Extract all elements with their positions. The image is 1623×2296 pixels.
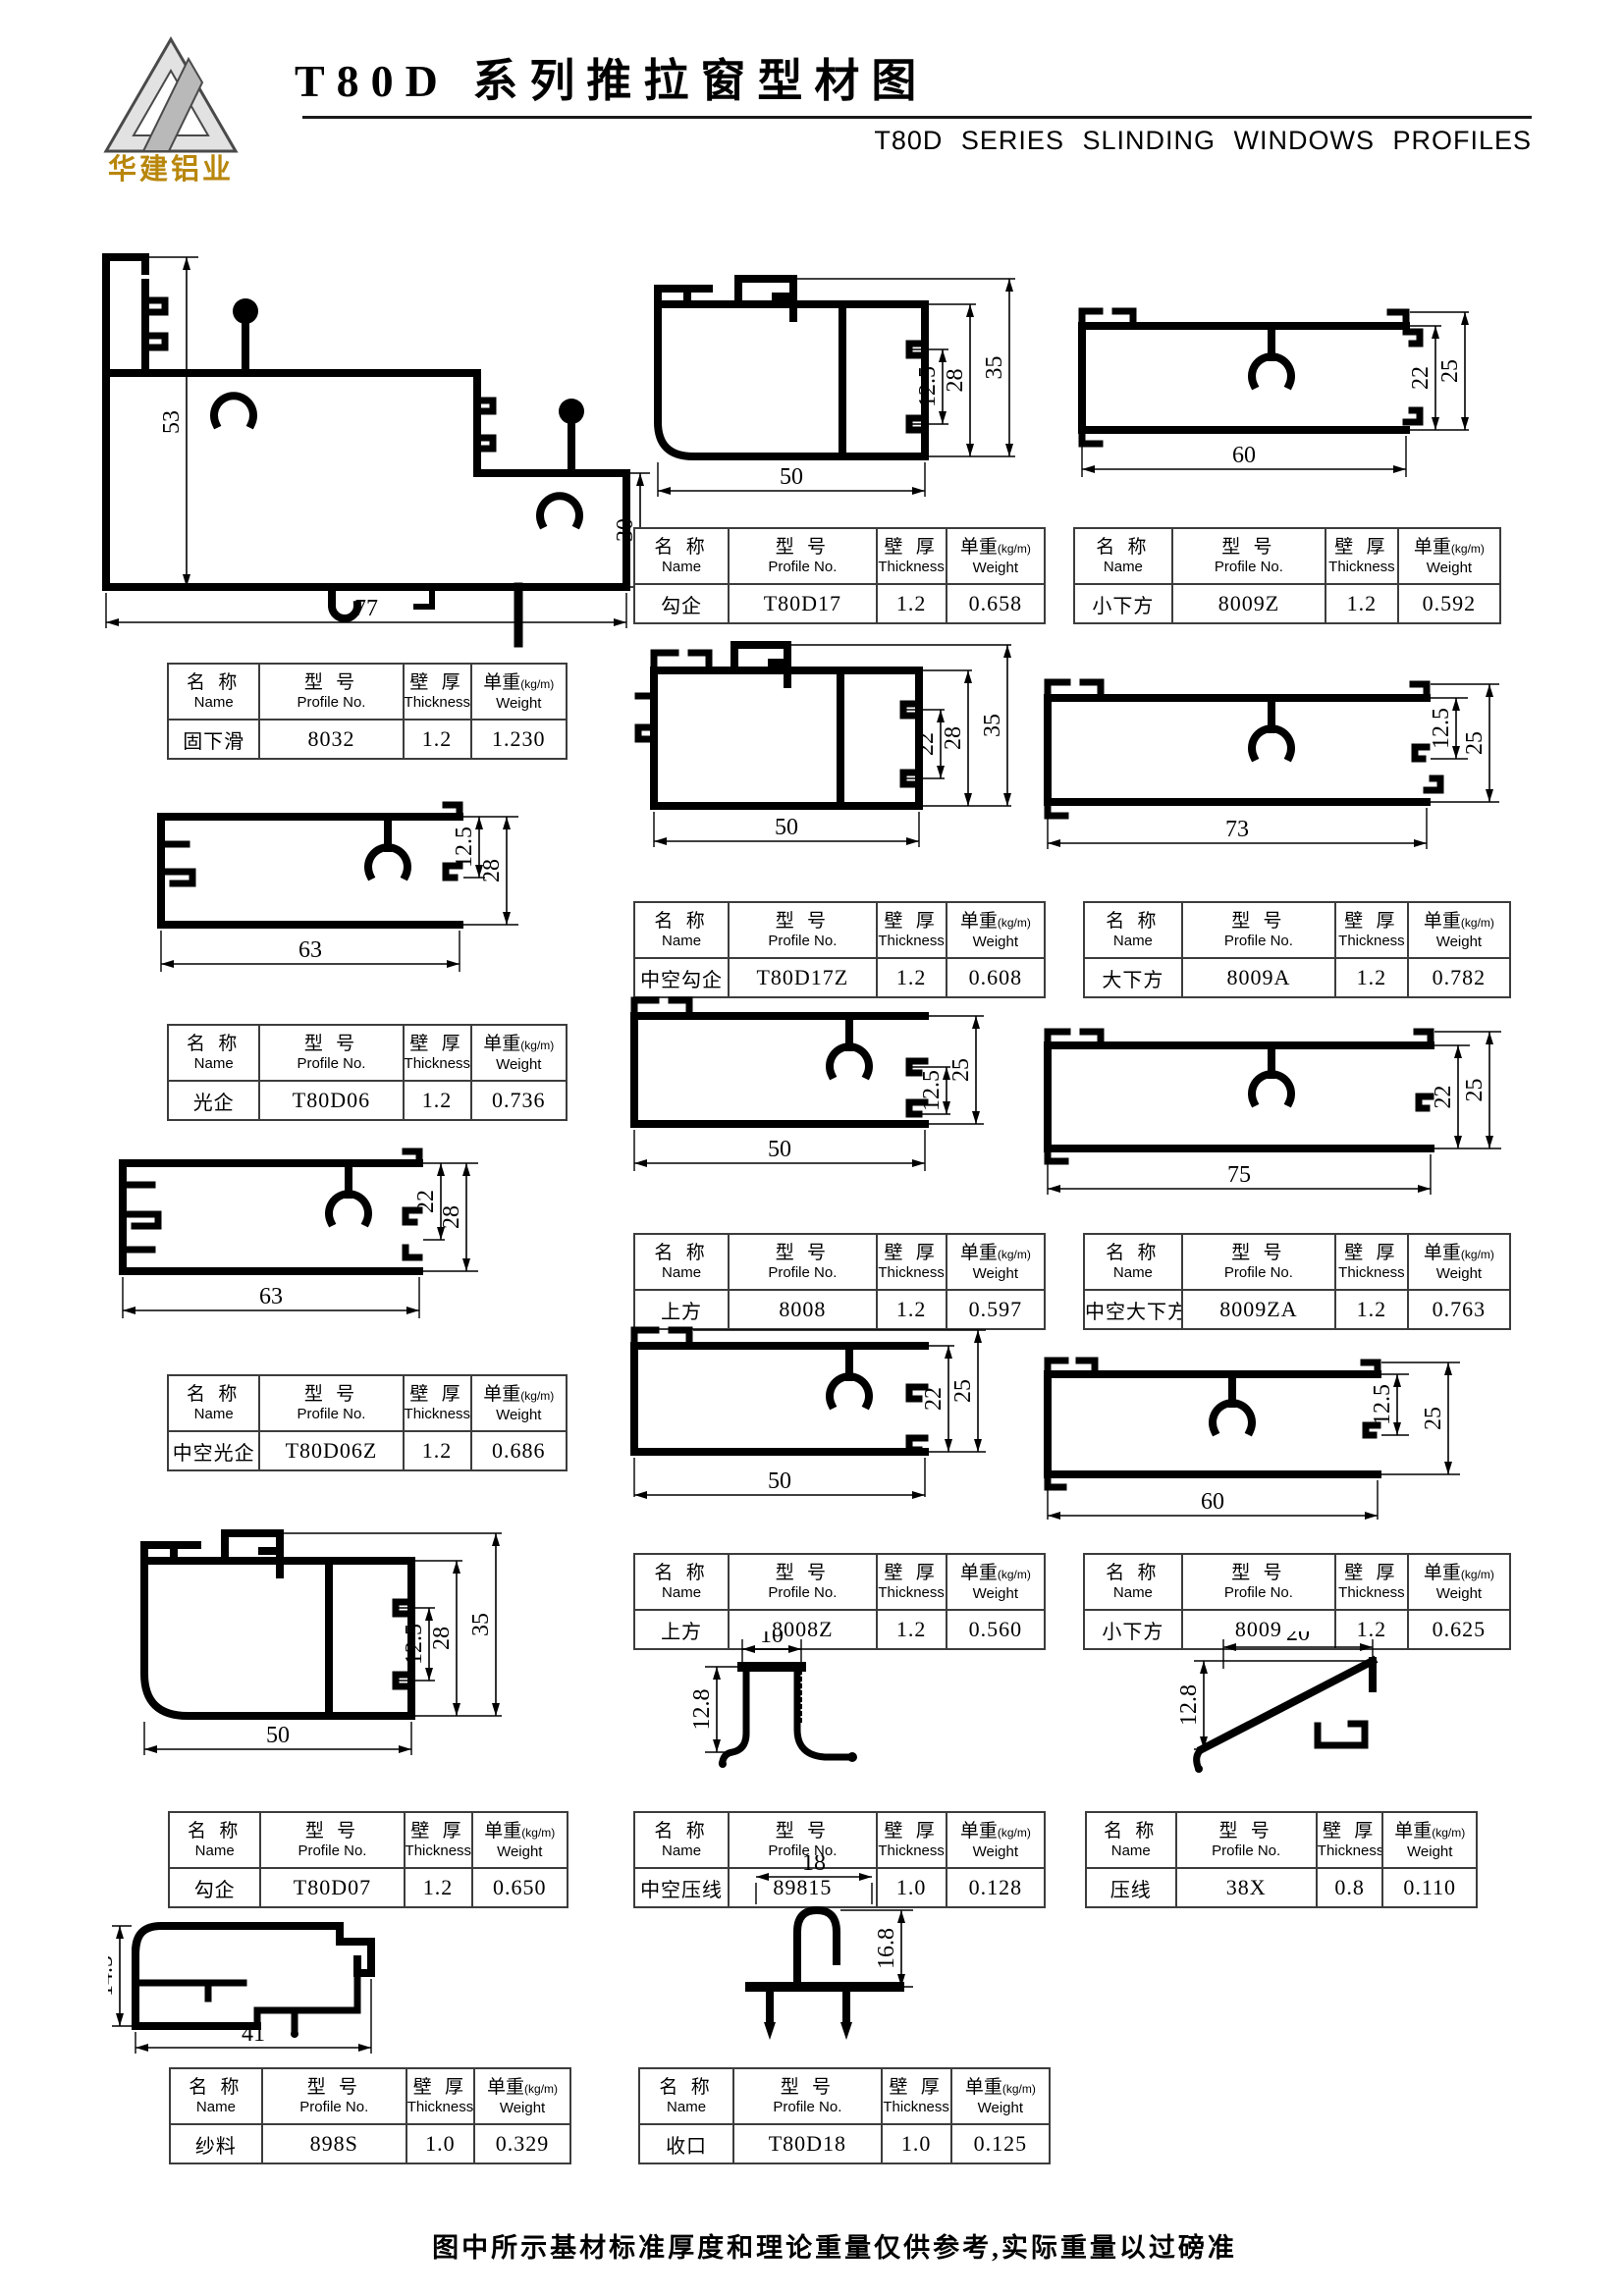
col-name-cn: 名 称	[635, 1243, 728, 1264]
col-model-cn: 型 号	[263, 2077, 406, 2099]
profile-model: 8009A	[1182, 958, 1335, 997]
profile-data-row: 小下方 8009Z 1.2 0.592	[1074, 584, 1500, 623]
col-weight-cn: 单重(kg/m)	[947, 911, 1044, 934]
col-thickness-cn: 壁 厚	[1336, 911, 1407, 933]
col-thickness-en: Thickness	[1336, 1584, 1407, 1601]
profile-name: 小下方	[1074, 584, 1172, 623]
col-model-en: Profile No.	[1183, 933, 1334, 949]
profile-group-89815: 1012.8	[677, 1631, 889, 1789]
col-weight-en: Weight	[947, 1843, 1044, 1860]
col-weight-cn: 单重(kg/m)	[472, 1034, 566, 1056]
col-model-en: Profile No.	[730, 559, 875, 575]
table-header-row: 名 称Name 型 号Profile No. 壁 厚Thickness 单重(k…	[1084, 902, 1510, 958]
dimension-label: 73	[1225, 817, 1249, 842]
col-model-cn: 型 号	[730, 1821, 875, 1842]
table-header-row: 名 称Name 型 号Profile No. 壁 厚Thickness 单重(k…	[1086, 1812, 1477, 1868]
profile-name: 中空大下方	[1084, 1290, 1182, 1329]
table-header-row: 名 称Name 型 号Profile No. 壁 厚Thickness 单重(k…	[1084, 1234, 1510, 1290]
col-name-cn: 名 称	[635, 1563, 728, 1584]
col-name-en: Name	[169, 694, 258, 711]
profile-weight: 0.625	[1408, 1610, 1510, 1649]
profile-name: 收口	[639, 2124, 733, 2163]
profile-drawing-8009A: 12.52573	[1036, 653, 1537, 898]
col-weight-en: Weight	[947, 1585, 1044, 1602]
dimension-label: 16.8	[874, 1928, 899, 1969]
dimension-label: 50	[780, 464, 803, 490]
table-header-row: 名 称Name 型 号Profile No. 壁 厚Thickness 单重(k…	[168, 664, 567, 720]
col-model-cn: 型 号	[730, 1243, 875, 1264]
col-name-cn: 名 称	[635, 1821, 728, 1842]
profile-group-8009ZA: 222575	[1036, 1006, 1537, 1230]
profile-data-row: 压线 38X 0.8 0.110	[1086, 1868, 1477, 1907]
profile-group-8008: 12.52550	[619, 967, 1041, 1230]
col-thickness-cn: 壁 厚	[407, 2077, 473, 2099]
dimension-label: 63	[259, 1284, 283, 1309]
col-weight-cn: 单重(kg/m)	[952, 2077, 1049, 2100]
col-name-en: Name	[635, 1584, 728, 1601]
profile-weight: 0.329	[474, 2124, 570, 2163]
col-thickness-cn: 壁 厚	[405, 1384, 470, 1406]
profile-group-38X: 2012.8	[1168, 1631, 1409, 1789]
col-weight-en: Weight	[952, 2100, 1049, 2116]
profile-drawing-T80D06: 12.52863	[147, 775, 569, 1021]
col-name-cn: 名 称	[635, 911, 728, 933]
profile-table-wrap-T80D17: 名 称Name 型 号Profile No. 壁 厚Thickness 单重(k…	[633, 527, 1046, 624]
col-thickness-cn: 壁 厚	[406, 1821, 471, 1842]
col-model-en: Profile No.	[730, 1264, 875, 1281]
profile-model: 8009ZA	[1182, 1290, 1335, 1329]
profile-weight: 1.230	[471, 720, 567, 759]
col-thickness-en: Thickness	[405, 1055, 470, 1072]
profile-weight: 0.560	[947, 1610, 1045, 1649]
col-weight-en: Weight	[1409, 1265, 1509, 1282]
table-header-row: 名 称Name 型 号Profile No. 壁 厚Thickness 单重(k…	[634, 902, 1045, 958]
profile-name: 小下方	[1084, 1610, 1182, 1649]
dimension-label: 12.5	[402, 1624, 427, 1665]
profile-weight: 0.736	[471, 1081, 567, 1120]
profile-data-row: 大下方 8009A 1.2 0.782	[1084, 958, 1510, 997]
profile-thickness: 1.2	[404, 720, 471, 759]
company-logo: 华建铝业	[86, 31, 255, 188]
dimension-label: 53	[159, 410, 185, 434]
col-weight-en: Weight	[472, 1056, 566, 1073]
table-header-row: 名 称Name 型 号Profile No. 壁 厚Thickness 单重(k…	[639, 2068, 1050, 2124]
profile-table-898S: 名 称Name 型 号Profile No. 壁 厚Thickness 单重(k…	[169, 2067, 571, 2164]
dimension-label: 28	[943, 369, 968, 393]
col-name-cn: 名 称	[1085, 911, 1181, 933]
profile-drawing-T80D17: 12.5283550	[619, 245, 1041, 525]
dimension-label: 25	[1437, 359, 1463, 383]
col-model-cn: 型 号	[734, 2077, 880, 2099]
profile-thickness: 1.2	[1335, 958, 1408, 997]
profile-drawing-8032: 533077	[88, 167, 658, 658]
col-thickness-en: Thickness	[878, 933, 946, 949]
profile-weight: 0.128	[947, 1868, 1045, 1907]
profile-table-38X: 名 称Name 型 号Profile No. 壁 厚Thickness 单重(k…	[1085, 1811, 1478, 1908]
profile-data-row: 光企 T80D06 1.2 0.736	[168, 1081, 567, 1120]
col-weight-cn: 单重(kg/m)	[1409, 1243, 1509, 1265]
col-thickness-en: Thickness	[883, 2099, 950, 2115]
profile-table-8009ZA: 名 称Name 型 号Profile No. 壁 厚Thickness 单重(k…	[1083, 1233, 1511, 1330]
profile-drawing-T80D18: 1816.8	[727, 1855, 938, 2052]
profile-drawing-T80D07: 12.5283550	[103, 1492, 550, 1777]
dimension-label: 60	[1201, 1489, 1224, 1515]
table-header-row: 名 称Name 型 号Profile No. 壁 厚Thickness 单重(k…	[169, 1812, 568, 1868]
col-model-en: Profile No.	[261, 1842, 403, 1859]
table-header-row: 名 称Name 型 号Profile No. 壁 厚Thickness 单重(k…	[634, 528, 1045, 584]
col-weight-en: Weight	[947, 560, 1044, 576]
profile-group-8009A: 12.52573	[1036, 653, 1537, 898]
col-weight-cn: 单重(kg/m)	[473, 1821, 567, 1843]
profile-table-wrap-38X: 名 称Name 型 号Profile No. 壁 厚Thickness 单重(k…	[1085, 1811, 1478, 1908]
col-weight-cn: 单重(kg/m)	[1399, 537, 1499, 560]
col-thickness-en: Thickness	[406, 1842, 471, 1859]
col-model-en: Profile No.	[263, 2099, 406, 2115]
profile-table-wrap-8032: 名 称Name 型 号Profile No. 壁 厚Thickness 单重(k…	[167, 663, 568, 760]
dimension-label: 35	[468, 1613, 494, 1636]
col-name-en: Name	[635, 1264, 728, 1281]
profile-thickness: 1.0	[406, 2124, 474, 2163]
col-name-en: Name	[635, 933, 728, 949]
col-thickness-en: Thickness	[405, 694, 470, 711]
profile-drawing-8009Z: 222560	[1070, 275, 1522, 525]
dimension-label: 63	[298, 937, 322, 963]
profile-table-wrap-T80D06Z: 名 称Name 型 号Profile No. 壁 厚Thickness 单重(k…	[167, 1374, 568, 1471]
col-thickness-en: Thickness	[1336, 933, 1407, 949]
col-model-cn: 型 号	[730, 911, 875, 933]
dimension-label: 25	[1421, 1407, 1446, 1430]
profile-table-wrap-8009A: 名 称Name 型 号Profile No. 壁 厚Thickness 单重(k…	[1083, 901, 1511, 998]
profile-table-8009A: 名 称Name 型 号Profile No. 壁 厚Thickness 单重(k…	[1083, 901, 1511, 998]
profile-model: 8009Z	[1172, 584, 1325, 623]
col-thickness-en: Thickness	[878, 559, 946, 575]
col-weight-en: Weight	[947, 934, 1044, 950]
col-model-cn: 型 号	[261, 1821, 403, 1842]
col-model-cn: 型 号	[1183, 911, 1334, 933]
col-thickness-cn: 壁 厚	[878, 1243, 946, 1264]
dimension-label: 77	[354, 596, 378, 621]
dimension-label: 25	[1462, 1079, 1488, 1102]
dimension-label: 25	[950, 1379, 976, 1403]
profile-thickness: 1.2	[404, 1431, 471, 1470]
col-name-en: Name	[1085, 1264, 1181, 1281]
page-subtitle: T80D SERIES SLINDING WINDOWS PROFILES	[874, 126, 1532, 156]
profile-group-8032: 533077	[88, 167, 658, 658]
col-name-en: Name	[169, 1406, 258, 1422]
col-name-cn: 名 称	[170, 1821, 259, 1842]
col-model-en: Profile No.	[260, 1055, 402, 1072]
dimension-label: 18	[802, 1855, 826, 1876]
col-name-cn: 名 称	[171, 2077, 261, 2099]
col-thickness-cn: 壁 厚	[1318, 1821, 1382, 1842]
col-thickness-cn: 壁 厚	[1336, 1243, 1407, 1264]
col-model-en: Profile No.	[1177, 1842, 1316, 1859]
col-weight-cn: 单重(kg/m)	[947, 537, 1044, 560]
col-model-cn: 型 号	[260, 1034, 402, 1055]
profile-name: 大下方	[1084, 958, 1182, 997]
profile-group-T80D18: 1816.8	[727, 1855, 938, 2052]
profile-thickness: 0.8	[1317, 1868, 1383, 1907]
col-model-en: Profile No.	[730, 1584, 875, 1601]
col-model-cn: 型 号	[730, 1563, 875, 1584]
col-name-en: Name	[171, 2099, 261, 2115]
col-thickness-en: Thickness	[405, 1406, 470, 1422]
profile-table-T80D07: 名 称Name 型 号Profile No. 壁 厚Thickness 单重(k…	[168, 1811, 568, 1908]
col-name-en: Name	[169, 1055, 258, 1072]
profile-model: 8032	[259, 720, 403, 759]
profile-model: T80D06	[259, 1081, 403, 1120]
col-weight-cn: 单重(kg/m)	[1409, 911, 1509, 934]
profile-thickness: 1.2	[404, 1081, 471, 1120]
dimension-label: 22	[1408, 366, 1434, 390]
col-weight-cn: 单重(kg/m)	[472, 1384, 566, 1407]
profile-table-wrap-T80D06: 名 称Name 型 号Profile No. 壁 厚Thickness 单重(k…	[167, 1024, 568, 1121]
dimension-label: 22	[1431, 1086, 1456, 1109]
dimension-label: 20	[1286, 1631, 1310, 1646]
dimension-label: 22	[413, 1190, 439, 1213]
profile-name: 压线	[1086, 1868, 1176, 1907]
profile-drawing-8008: 12.52550	[619, 967, 1041, 1230]
profile-name: 固下滑	[168, 720, 259, 759]
col-thickness-cn: 壁 厚	[1326, 537, 1397, 559]
col-model-cn: 型 号	[1183, 1563, 1334, 1584]
profile-model: 38X	[1176, 1868, 1317, 1907]
profile-name: 光企	[168, 1081, 259, 1120]
profile-drawing-8008Z: 222550	[619, 1301, 1041, 1551]
col-weight-cn: 单重(kg/m)	[947, 1243, 1044, 1265]
col-model-en: Profile No.	[1173, 559, 1325, 575]
dimension-label: 28	[941, 726, 966, 750]
col-thickness-en: Thickness	[407, 2099, 473, 2115]
col-model-en: Profile No.	[1183, 1264, 1334, 1281]
profile-data-row: 中空大下方 8009ZA 1.2 0.763	[1084, 1290, 1510, 1329]
profile-group-T80D06: 12.52863	[147, 775, 569, 1021]
col-thickness-en: Thickness	[1326, 559, 1397, 575]
col-model-en: Profile No.	[1183, 1584, 1334, 1601]
dimension-label: 12.8	[1176, 1684, 1202, 1726]
profile-table-wrap-T80D18: 名 称Name 型 号Profile No. 壁 厚Thickness 单重(k…	[638, 2067, 1051, 2164]
col-thickness-cn: 壁 厚	[878, 911, 946, 933]
col-thickness-cn: 壁 厚	[883, 2077, 950, 2099]
col-name-en: Name	[1085, 1584, 1181, 1601]
col-model-cn: 型 号	[1177, 1821, 1316, 1842]
dimension-label: 28	[439, 1205, 464, 1229]
col-name-cn: 名 称	[1075, 537, 1171, 559]
profile-model: T80D06Z	[259, 1431, 403, 1470]
table-header-row: 名 称Name 型 号Profile No. 壁 厚Thickness 单重(k…	[634, 1554, 1045, 1610]
profile-drawing-89815: 1012.8	[677, 1631, 889, 1789]
col-name-en: Name	[170, 1842, 259, 1859]
profile-group-898S: 14.541	[108, 1896, 452, 2065]
dimension-label: 12.5	[452, 827, 477, 868]
table-header-row: 名 称Name 型 号Profile No. 壁 厚Thickness 单重(k…	[634, 1234, 1045, 1290]
profile-group-T80D17: 12.5283550	[619, 245, 1041, 525]
col-weight-cn: 单重(kg/m)	[475, 2077, 569, 2100]
table-header-row: 名 称Name 型 号Profile No. 壁 厚Thickness 单重(k…	[168, 1025, 567, 1081]
profile-data-row: 中空光企 T80D06Z 1.2 0.686	[168, 1431, 567, 1470]
profile-thickness: 1.0	[882, 2124, 951, 2163]
profile-model: 898S	[262, 2124, 406, 2163]
col-model-en: Profile No.	[730, 933, 875, 949]
profile-table-wrap-T80D07: 名 称Name 型 号Profile No. 壁 厚Thickness 单重(k…	[168, 1811, 568, 1908]
table-header-row: 名 称Name 型 号Profile No. 壁 厚Thickness 单重(k…	[170, 2068, 570, 2124]
col-name-en: Name	[1087, 1842, 1175, 1859]
col-model-en: Profile No.	[260, 694, 402, 711]
dimension-label: 60	[1232, 443, 1256, 468]
col-thickness-en: Thickness	[878, 1584, 946, 1601]
dimension-label: 50	[768, 1137, 791, 1162]
col-thickness-cn: 壁 厚	[878, 537, 946, 559]
profile-weight: 0.592	[1398, 584, 1500, 623]
col-model-en: Profile No.	[734, 2099, 880, 2115]
col-name-cn: 名 称	[1085, 1243, 1181, 1264]
dimension-label: 22	[921, 1387, 947, 1411]
col-name-cn: 名 称	[635, 537, 728, 559]
dimension-label: 50	[266, 1723, 290, 1748]
col-weight-en: Weight	[472, 1407, 566, 1423]
col-name-en: Name	[635, 559, 728, 575]
col-name-cn: 名 称	[169, 1384, 258, 1406]
profile-table-8009Z: 名 称Name 型 号Profile No. 壁 厚Thickness 单重(k…	[1073, 527, 1501, 624]
col-name-cn: 名 称	[169, 672, 258, 694]
col-thickness-cn: 壁 厚	[405, 1034, 470, 1055]
col-name-cn: 名 称	[1087, 1821, 1175, 1842]
col-name-en: Name	[1085, 933, 1181, 949]
col-weight-en: Weight	[1383, 1843, 1476, 1860]
col-name-cn: 名 称	[169, 1034, 258, 1055]
col-thickness-en: Thickness	[1336, 1264, 1407, 1281]
dimension-label: 35	[982, 356, 1007, 380]
profile-name: 中空压线	[634, 1868, 729, 1907]
dimension-label: 12.5	[919, 1070, 945, 1111]
col-model-cn: 型 号	[1173, 537, 1325, 559]
profile-weight: 0.782	[1408, 958, 1510, 997]
table-header-row: 名 称Name 型 号Profile No. 壁 厚Thickness 单重(k…	[168, 1375, 567, 1431]
profile-group-8009: 12.52560	[1036, 1335, 1537, 1551]
col-name-cn: 名 称	[1085, 1563, 1181, 1584]
profile-table-T80D06Z: 名 称Name 型 号Profile No. 壁 厚Thickness 单重(k…	[167, 1374, 568, 1471]
profile-thickness: 1.2	[1335, 1290, 1408, 1329]
profile-drawing-T80D06Z: 222863	[103, 1124, 565, 1369]
profile-weight: 0.650	[472, 1868, 568, 1907]
profile-table-T80D17: 名 称Name 型 号Profile No. 壁 厚Thickness 单重(k…	[633, 527, 1046, 624]
dimension-label: 12.5	[1370, 1384, 1395, 1425]
col-name-en: Name	[635, 1842, 728, 1859]
profile-name: 中空光企	[168, 1431, 259, 1470]
dimension-label: 41	[242, 2021, 265, 2047]
profile-table-wrap-8009Z: 名 称Name 型 号Profile No. 壁 厚Thickness 单重(k…	[1073, 527, 1501, 624]
dimension-label: 25	[1462, 731, 1488, 755]
catalog-page: 华建铝业 T80D 系列推拉窗型材图 T80D SERIES SLINDING …	[0, 0, 1623, 2296]
profile-drawing-8009: 12.52560	[1036, 1335, 1537, 1551]
col-model-cn: 型 号	[260, 1384, 402, 1406]
profile-name: 纱料	[170, 2124, 262, 2163]
profile-drawing-T80D17Z: 22283550	[619, 614, 1041, 879]
col-thickness-en: Thickness	[1318, 1842, 1382, 1859]
profile-table-wrap-898S: 名 称Name 型 号Profile No. 壁 厚Thickness 单重(k…	[169, 2067, 571, 2164]
profile-drawing-898S: 14.541	[108, 1896, 452, 2065]
dimension-label: 12.5	[1429, 708, 1454, 749]
table-header-row: 名 称Name 型 号Profile No. 壁 厚Thickness 单重(k…	[1074, 528, 1500, 584]
col-model-en: Profile No.	[260, 1406, 402, 1422]
col-thickness-cn: 壁 厚	[1336, 1563, 1407, 1584]
profile-data-row: 收口 T80D18 1.0 0.125	[639, 2124, 1050, 2163]
col-model-cn: 型 号	[1183, 1243, 1334, 1264]
col-model-cn: 型 号	[730, 537, 875, 559]
dimension-label: 28	[429, 1627, 455, 1650]
dimension-label: 50	[775, 815, 798, 840]
profile-group-8008Z: 222550	[619, 1301, 1041, 1551]
col-weight-cn: 单重(kg/m)	[947, 1563, 1044, 1585]
col-weight-en: Weight	[947, 1265, 1044, 1282]
profile-drawing-38X: 2012.8	[1168, 1631, 1409, 1789]
dimension-label: 22	[913, 732, 939, 756]
dimension-label: 28	[479, 859, 505, 882]
col-weight-cn: 单重(kg/m)	[947, 1821, 1044, 1843]
profile-group-T80D17Z: 22283550	[619, 614, 1041, 879]
profile-data-row: 固下滑 8032 1.2 1.230	[168, 720, 567, 759]
profile-table-wrap-8009ZA: 名 称Name 型 号Profile No. 壁 厚Thickness 单重(k…	[1083, 1233, 1511, 1330]
col-weight-en: Weight	[472, 695, 566, 712]
table-header-row: 名 称Name 型 号Profile No. 壁 厚Thickness 单重(k…	[1084, 1554, 1510, 1610]
col-thickness-cn: 壁 厚	[405, 672, 470, 694]
profile-weight: 0.110	[1382, 1868, 1477, 1907]
dimension-label: 75	[1227, 1162, 1251, 1188]
profile-weight: 0.686	[471, 1431, 567, 1470]
profile-group-T80D07: 12.5283550	[103, 1492, 550, 1777]
col-weight-en: Weight	[473, 1843, 567, 1860]
title-rule	[302, 116, 1532, 119]
col-model-cn: 型 号	[260, 672, 402, 694]
col-weight-en: Weight	[475, 2100, 569, 2116]
col-name-en: Name	[1075, 559, 1171, 575]
dimension-label: 35	[980, 714, 1005, 737]
profile-data-row: 纱料 898S 1.0 0.329	[170, 2124, 570, 2163]
col-weight-cn: 单重(kg/m)	[1409, 1563, 1509, 1585]
profile-group-8009Z: 222560	[1070, 275, 1522, 525]
col-weight-en: Weight	[1409, 934, 1509, 950]
col-weight-en: Weight	[1399, 560, 1499, 576]
profile-drawing-8009ZA: 222575	[1036, 1006, 1537, 1230]
col-name-cn: 名 称	[640, 2077, 732, 2099]
profile-thickness: 1.2	[1325, 584, 1398, 623]
col-thickness-en: Thickness	[878, 1264, 946, 1281]
profile-table-T80D18: 名 称Name 型 号Profile No. 壁 厚Thickness 单重(k…	[638, 2067, 1051, 2164]
col-name-en: Name	[640, 2099, 732, 2115]
col-weight-en: Weight	[1409, 1585, 1509, 1602]
profile-group-T80D06Z: 222863	[103, 1124, 565, 1369]
dimension-label: 14.5	[108, 1955, 118, 1997]
col-weight-cn: 单重(kg/m)	[472, 672, 566, 695]
col-thickness-cn: 壁 厚	[878, 1821, 946, 1842]
profile-weight: 0.763	[1408, 1290, 1510, 1329]
profile-table-8032: 名 称Name 型 号Profile No. 壁 厚Thickness 单重(k…	[167, 663, 568, 760]
col-thickness-cn: 壁 厚	[878, 1563, 946, 1584]
dimension-label: 25	[948, 1058, 974, 1082]
footer-note: 图中所示基材标准厚度和理论重量仅供参考,实际重量以过磅准	[245, 2226, 1424, 2265]
col-weight-cn: 单重(kg/m)	[1383, 1821, 1476, 1843]
dimension-label: 50	[768, 1468, 791, 1494]
profile-weight: 0.125	[951, 2124, 1050, 2163]
dimension-label: 12.8	[689, 1689, 715, 1731]
page-title: T80D 系列推拉窗型材图	[295, 45, 928, 110]
profile-model: T80D18	[733, 2124, 881, 2163]
profile-table-T80D06: 名 称Name 型 号Profile No. 壁 厚Thickness 单重(k…	[167, 1024, 568, 1121]
dimension-label: 10	[760, 1631, 784, 1648]
dimension-label: 12.5	[915, 366, 941, 407]
